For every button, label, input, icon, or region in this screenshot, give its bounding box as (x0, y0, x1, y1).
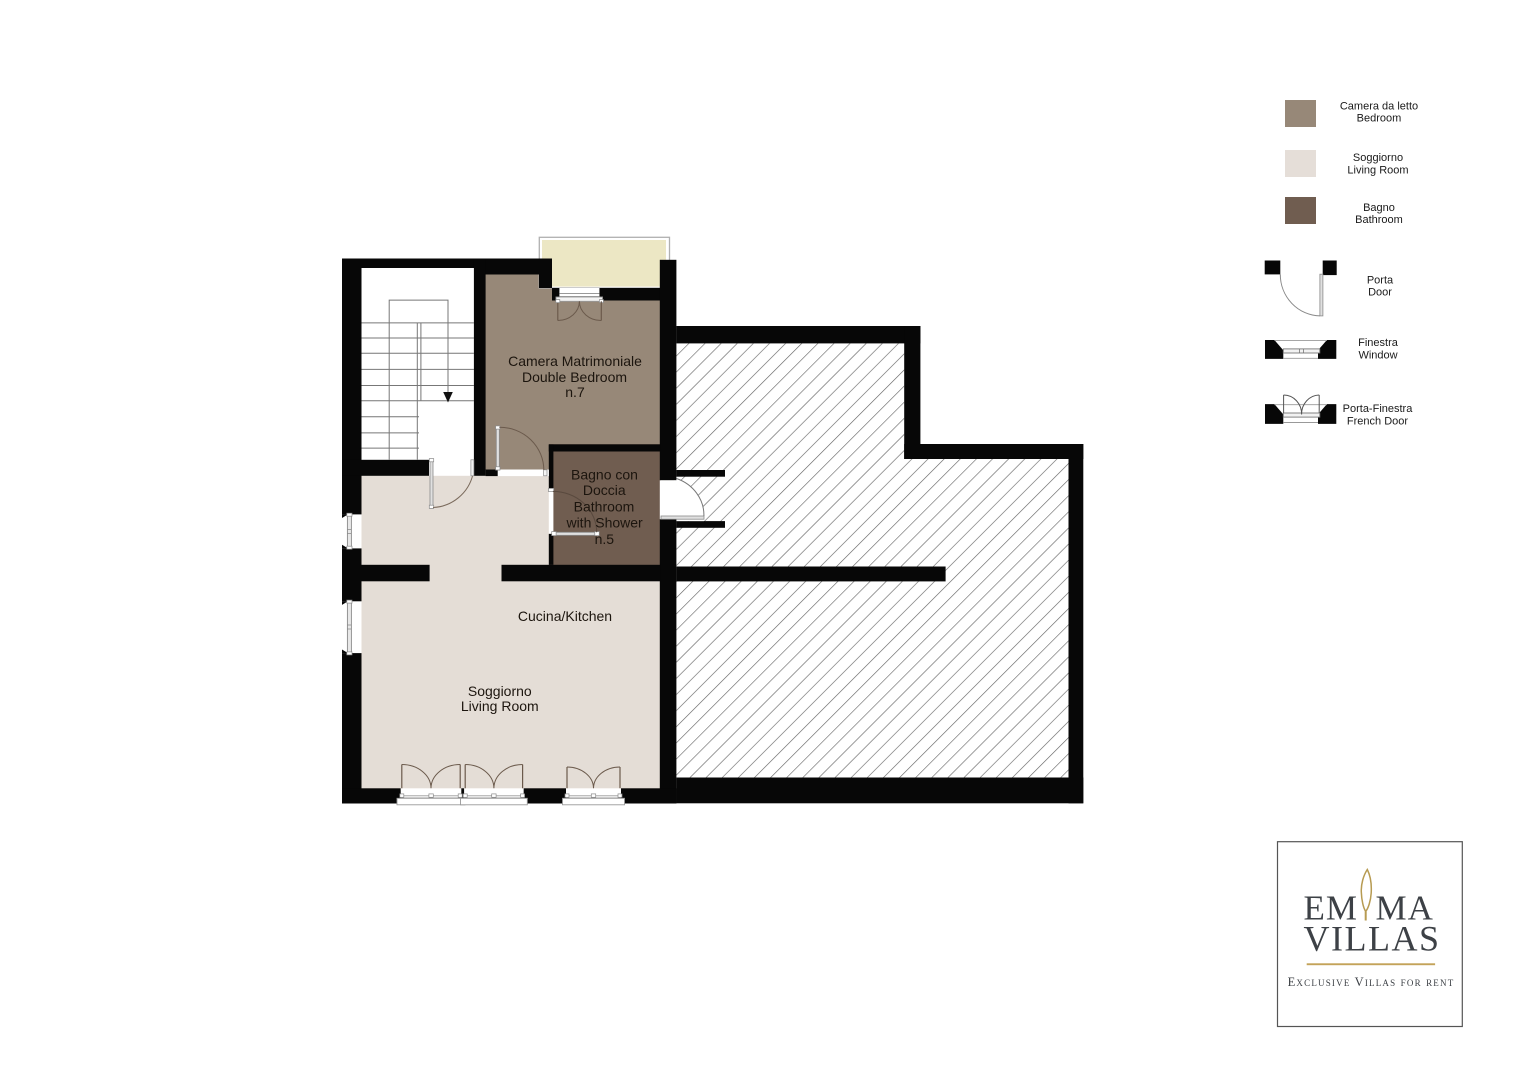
svg-text:Window: Window (1358, 350, 1397, 362)
svg-text:Bedroom: Bedroom (1357, 113, 1402, 125)
svg-text:Soggiorno: Soggiorno (1353, 152, 1403, 164)
svg-text:Living Room: Living Room (461, 698, 539, 714)
svg-text:VILLAS: VILLAS (1304, 919, 1441, 959)
svg-text:Bathroom: Bathroom (574, 498, 635, 514)
svg-text:Living Room: Living Room (1347, 165, 1408, 177)
svg-text:Porta: Porta (1367, 275, 1394, 287)
svg-text:n.7: n.7 (565, 384, 585, 400)
svg-text:Cucina/Kitchen: Cucina/Kitchen (518, 608, 612, 624)
svg-text:Soggiorno: Soggiorno (468, 683, 532, 699)
svg-text:with Shower: with Shower (565, 515, 643, 531)
svg-text:French Door: French Door (1347, 416, 1408, 428)
svg-text:n.5: n.5 (595, 531, 615, 547)
svg-text:Doccia: Doccia (583, 482, 626, 498)
svg-text:Exclusive Villas for rent: Exclusive Villas for rent (1288, 975, 1455, 989)
svg-text:Bagno: Bagno (1363, 202, 1395, 214)
svg-text:Double Bedroom: Double Bedroom (522, 369, 627, 385)
svg-text:Bathroom: Bathroom (1355, 214, 1403, 226)
svg-text:Camera da letto: Camera da letto (1340, 100, 1418, 112)
svg-text:Porta-Finestra: Porta-Finestra (1343, 403, 1414, 415)
svg-text:Camera Matrimoniale: Camera Matrimoniale (508, 353, 642, 369)
svg-text:Finestra: Finestra (1358, 337, 1399, 349)
svg-text:Door: Door (1368, 287, 1392, 299)
svg-text:Bagno con: Bagno con (571, 466, 638, 482)
